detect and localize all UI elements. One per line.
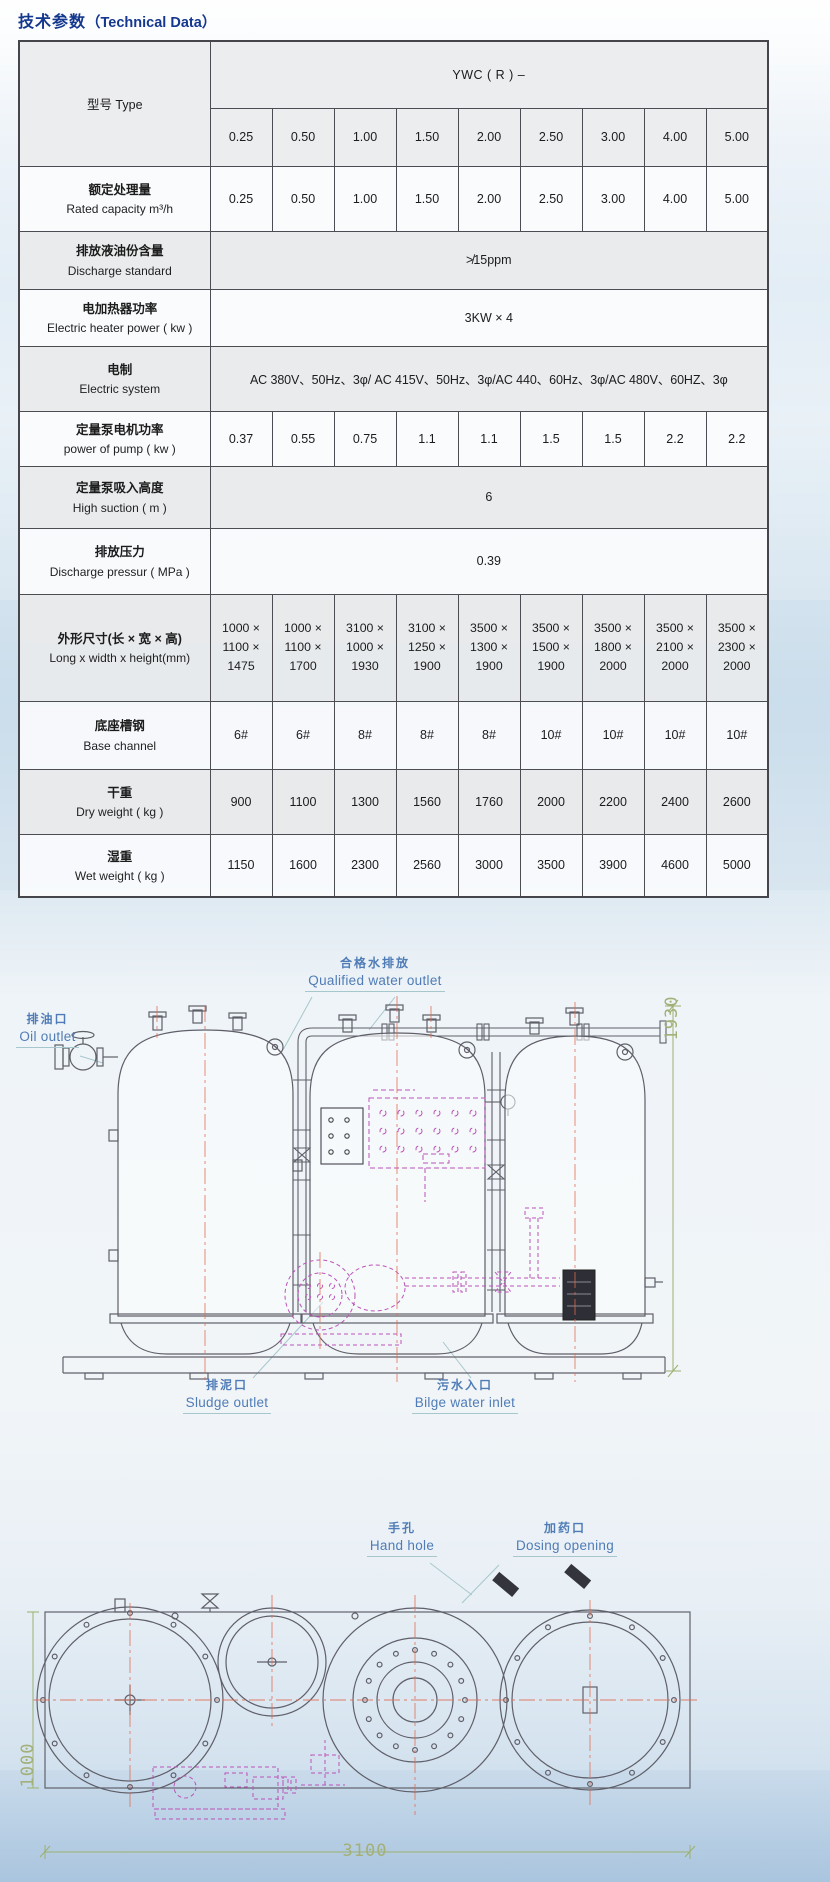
value-cell: 3100 ×1000 ×1930 — [334, 594, 396, 701]
value-cell: 4.00 — [644, 166, 706, 231]
model-header-cell: 0.50 — [272, 108, 334, 166]
span-value-cell: 3KW × 4 — [210, 289, 768, 346]
row-label-en: Discharge standard — [30, 263, 210, 279]
row-label-zh: 额定处理量 — [30, 180, 210, 201]
row-label-zh: 定量泵电机功率 — [30, 420, 210, 441]
model-header-cell: 3.00 — [582, 108, 644, 166]
row-label-zh: 排放液油份含量 — [30, 241, 210, 262]
row-label-cell: 定量泵吸入高度High suction ( m ) — [19, 466, 210, 528]
technical-data-table: 型号 TypeYWC ( R ) –0.250.501.001.502.002.… — [18, 40, 769, 898]
table-row: 湿重Wet weight ( kg )115016002300256030003… — [19, 834, 768, 897]
dimension-line-1930 — [665, 1000, 681, 1377]
table-head: 型号 TypeYWC ( R ) –0.250.501.001.502.002.… — [19, 41, 768, 166]
label-bilge-water-inlet-en: Bilge water inlet — [412, 1394, 518, 1414]
row-label-zh: 湿重 — [30, 847, 210, 868]
dimension-1930: 1930 — [662, 993, 682, 1043]
value-cell: 2560 — [396, 834, 458, 897]
model-header-cell: 2.50 — [520, 108, 582, 166]
row-label-cell: 排放液油份含量Discharge standard — [19, 231, 210, 289]
table-body: 额定处理量Rated capacity m³/h0.250.501.001.50… — [19, 166, 768, 897]
model-header-cell: 1.00 — [334, 108, 396, 166]
label-hand-hole-zh: 手孔 — [347, 1521, 457, 1536]
value-cell: 6# — [210, 701, 272, 769]
value-cell: 0.75 — [334, 411, 396, 466]
value-cell: 4600 — [644, 834, 706, 897]
value-cell: 6# — [272, 701, 334, 769]
row-label-zh: 定量泵吸入高度 — [30, 478, 210, 499]
value-cell: 1.1 — [396, 411, 458, 466]
value-cell: 10# — [520, 701, 582, 769]
value-cell: 3900 — [582, 834, 644, 897]
value-line: 1700 — [273, 657, 334, 676]
row-label-cell: 底座槽钢Base channel — [19, 701, 210, 769]
value-cell: 2400 — [644, 769, 706, 834]
label-qualified-water-outlet-zh: 合格水排放 — [275, 956, 475, 971]
table-row: 底座槽钢Base channel6#6#8#8#8#10#10#10#10# — [19, 701, 768, 769]
label-dosing-opening: 加药口 Dosing opening — [485, 1521, 645, 1557]
table-row: 电加热器功率Electric heater power ( kw )3KW × … — [19, 289, 768, 346]
value-line: 2000 — [583, 657, 644, 676]
value-line: 3500 × — [645, 619, 706, 638]
value-cell: 1560 — [396, 769, 458, 834]
table-row: 干重Dry weight ( kg )900110013001560176020… — [19, 769, 768, 834]
row-label-en: Electric heater power ( kw ) — [30, 320, 210, 336]
value-line: 3500 × — [459, 619, 520, 638]
page-title-zh: 技术参数 — [18, 14, 86, 31]
model-header-cell: 5.00 — [706, 108, 768, 166]
label-oil-outlet-zh: 排油口 — [0, 1012, 100, 1027]
value-cell: 3.00 — [582, 166, 644, 231]
value-line: 1900 — [397, 657, 458, 676]
row-label-cell: 排放压力Discharge pressur ( MPa ) — [19, 528, 210, 594]
value-cell: 2.2 — [706, 411, 768, 466]
value-cell: 2600 — [706, 769, 768, 834]
value-cell: 5.00 — [706, 166, 768, 231]
row-label-cell: 电制Electric system — [19, 346, 210, 411]
filter-unit — [563, 1270, 595, 1320]
span-value-cell: 6 — [210, 466, 768, 528]
row-label-cell: 外形尺寸(长 × 宽 × 高)Long x width x height(mm) — [19, 594, 210, 701]
table-row: 电制Electric systemAC 380V、50Hz、3φ/ AC 415… — [19, 346, 768, 411]
value-line: 3100 × — [335, 619, 396, 638]
label-sludge-outlet-zh: 排泥口 — [157, 1378, 297, 1393]
span-value-cell: AC 380V、50Hz、3φ/ AC 415V、50Hz、3φ/AC 440、… — [210, 346, 768, 411]
value-cell: 3500 ×2100 ×2000 — [644, 594, 706, 701]
leader-lines — [430, 1563, 499, 1603]
value-line: 2000 — [707, 657, 768, 676]
value-cell: 0.37 — [210, 411, 272, 466]
label-dosing-opening-en: Dosing opening — [513, 1537, 617, 1557]
row-label-en: Dry weight ( kg ) — [30, 804, 210, 820]
row-label-en: Base channel — [30, 738, 210, 754]
label-oil-outlet: 排油口 Oil outlet — [0, 1012, 100, 1048]
plan-svg — [25, 1515, 725, 1882]
value-line: 1500 × — [521, 638, 582, 657]
table-row: 定量泵吸入高度High suction ( m )6 — [19, 466, 768, 528]
tank-middle — [302, 1005, 493, 1354]
series-header-cell: YWC ( R ) – — [210, 41, 768, 108]
value-cell: 1150 — [210, 834, 272, 897]
value-cell: 1.5 — [582, 411, 644, 466]
value-line: 2000 — [645, 657, 706, 676]
table-row: 定量泵电机功率power of pump ( kw )0.370.550.751… — [19, 411, 768, 466]
value-line: 1000 × — [273, 619, 334, 638]
span-value-cell: ≯15ppm — [210, 231, 768, 289]
value-cell: 1.00 — [334, 166, 396, 231]
pump-plan — [153, 1740, 345, 1819]
value-cell: 1600 — [272, 834, 334, 897]
elevation-svg — [25, 950, 725, 1430]
value-cell: 0.25 — [210, 166, 272, 231]
value-line: 1100 × — [273, 638, 334, 657]
dimension-3100: 3100 — [315, 1841, 415, 1861]
table-row: 排放压力Discharge pressur ( MPa )0.39 — [19, 528, 768, 594]
span-value-cell: 0.39 — [210, 528, 768, 594]
table-row: 外形尺寸(长 × 宽 × 高)Long x width x height(mm)… — [19, 594, 768, 701]
label-sludge-outlet: 排泥口 Sludge outlet — [157, 1378, 297, 1414]
row-label-cell: 额定处理量Rated capacity m³/h — [19, 166, 210, 231]
tank-circles — [37, 1594, 680, 1793]
value-cell: 5000 — [706, 834, 768, 897]
label-sludge-outlet-en: Sludge outlet — [183, 1394, 272, 1414]
label-bilge-water-inlet: 污水入口 Bilge water inlet — [390, 1378, 540, 1414]
row-label-cell: 电加热器功率Electric heater power ( kw ) — [19, 289, 210, 346]
type-header-cell: 型号 Type — [19, 41, 210, 166]
row-label-zh: 排放压力 — [30, 542, 210, 563]
label-hand-hole-en: Hand hole — [367, 1537, 437, 1557]
row-label-en: Rated capacity m³/h — [30, 201, 210, 217]
value-cell: 3500 ×1800 ×2000 — [582, 594, 644, 701]
datasheet-page: { "header": {"title_zh": "技术参数", "title_… — [0, 0, 830, 1882]
hatched-fittings — [492, 1564, 591, 1597]
value-cell: 3500 ×1500 ×1900 — [520, 594, 582, 701]
value-line: 3100 × — [397, 619, 458, 638]
label-qualified-water-outlet: 合格水排放 Qualified water outlet — [275, 956, 475, 992]
model-header-cell: 0.25 — [210, 108, 272, 166]
value-cell: 3500 — [520, 834, 582, 897]
value-cell: 3500 ×1300 ×1900 — [458, 594, 520, 701]
label-qualified-water-outlet-en: Qualified water outlet — [305, 972, 444, 992]
model-header-cell: 4.00 — [644, 108, 706, 166]
value-cell: 8# — [458, 701, 520, 769]
elevation-drawing: 合格水排放 Qualified water outlet 排油口 Oil out… — [25, 950, 725, 1430]
label-hand-hole: 手孔 Hand hole — [347, 1521, 457, 1557]
value-cell: 2.00 — [458, 166, 520, 231]
value-line: 1930 — [335, 657, 396, 676]
value-cell: 1.5 — [520, 411, 582, 466]
model-header-cell: 2.00 — [458, 108, 520, 166]
value-line: 1900 — [521, 657, 582, 676]
row-label-zh: 电加热器功率 — [30, 299, 210, 320]
row-label-en: power of pump ( kw ) — [30, 441, 210, 457]
row-label-zh: 外形尺寸(长 × 宽 × 高) — [30, 629, 210, 650]
row-label-en: Long x width x height(mm) — [30, 650, 210, 666]
value-cell: 1000 ×1100 ×1700 — [272, 594, 334, 701]
row-label-cell: 干重Dry weight ( kg ) — [19, 769, 210, 834]
model-header-cell: 1.50 — [396, 108, 458, 166]
value-line: 1100 × — [211, 638, 272, 657]
page-title-en: （Technical Data） — [86, 15, 216, 31]
value-cell: 3500 ×2300 ×2000 — [706, 594, 768, 701]
value-cell: 8# — [396, 701, 458, 769]
label-dosing-opening-zh: 加药口 — [485, 1521, 645, 1536]
table-row: 排放液油份含量Discharge standard≯15ppm — [19, 231, 768, 289]
value-cell: 3000 — [458, 834, 520, 897]
value-cell: 10# — [706, 701, 768, 769]
value-line: 1800 × — [583, 638, 644, 657]
label-bilge-water-inlet-zh: 污水入口 — [390, 1378, 540, 1393]
value-line: 1000 × — [335, 638, 396, 657]
value-line: 2100 × — [645, 638, 706, 657]
value-line: 1250 × — [397, 638, 458, 657]
dimension-1000: 1000 — [18, 1737, 38, 1793]
value-line: 3500 × — [521, 619, 582, 638]
label-oil-outlet-en: Oil outlet — [16, 1028, 78, 1048]
row-label-en: Discharge pressur ( MPa ) — [30, 564, 210, 580]
value-cell: 2000 — [520, 769, 582, 834]
row-label-zh: 干重 — [30, 783, 210, 804]
value-line: 3500 × — [707, 619, 768, 638]
value-line: 1900 — [459, 657, 520, 676]
row-label-cell: 湿重Wet weight ( kg ) — [19, 834, 210, 897]
value-cell: 0.50 — [272, 166, 334, 231]
tank-left — [109, 1006, 302, 1354]
row-label-en: Electric system — [30, 381, 210, 397]
value-cell: 1100 — [272, 769, 334, 834]
value-cell: 10# — [644, 701, 706, 769]
row-label-en: Wet weight ( kg ) — [30, 868, 210, 884]
row-label-cell: 定量泵电机功率power of pump ( kw ) — [19, 411, 210, 466]
value-cell: 2200 — [582, 769, 644, 834]
value-line: 1300 × — [459, 638, 520, 657]
value-cell: 1.50 — [396, 166, 458, 231]
value-cell: 1000 ×1100 ×1475 — [210, 594, 272, 701]
value-cell: 8# — [334, 701, 396, 769]
value-cell: 2.2 — [644, 411, 706, 466]
dimension-lines — [27, 1612, 695, 1859]
table-row: 额定处理量Rated capacity m³/h0.250.501.001.50… — [19, 166, 768, 231]
table-header-row: 型号 TypeYWC ( R ) – — [19, 41, 768, 108]
row-label-zh: 电制 — [30, 360, 210, 381]
row-label-zh: 底座槽钢 — [30, 716, 210, 737]
page-title: 技术参数（Technical Data） — [18, 8, 216, 32]
value-cell: 2300 — [334, 834, 396, 897]
value-cell: 3100 ×1250 ×1900 — [396, 594, 458, 701]
value-cell: 1.1 — [458, 411, 520, 466]
value-cell: 0.55 — [272, 411, 334, 466]
value-cell: 1300 — [334, 769, 396, 834]
value-line: 2300 × — [707, 638, 768, 657]
value-line: 3500 × — [583, 619, 644, 638]
value-cell: 1760 — [458, 769, 520, 834]
value-line: 1000 × — [211, 619, 272, 638]
value-cell: 2.50 — [520, 166, 582, 231]
plan-drawing: 手孔 Hand hole 加药口 Dosing opening 3100 100… — [25, 1515, 725, 1882]
row-label-en: High suction ( m ) — [30, 500, 210, 516]
value-line: 1475 — [211, 657, 272, 676]
value-cell: 900 — [210, 769, 272, 834]
value-cell: 10# — [582, 701, 644, 769]
